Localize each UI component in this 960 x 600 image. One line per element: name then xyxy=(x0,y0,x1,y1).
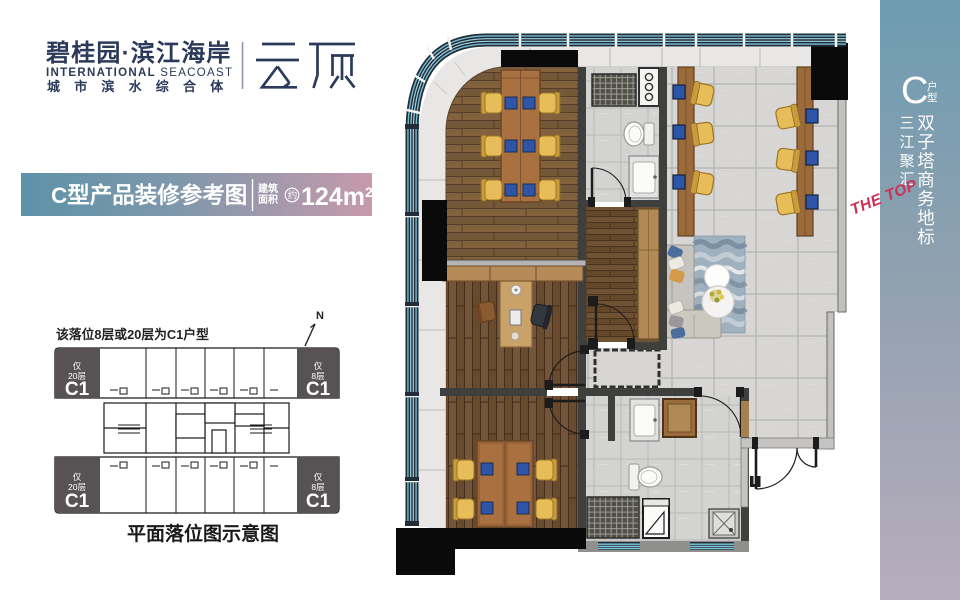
svg-text:标: 标 xyxy=(917,227,935,247)
svg-text:型: 型 xyxy=(927,91,938,104)
svg-text:N: N xyxy=(316,310,324,322)
svg-text:约: 约 xyxy=(288,190,298,202)
svg-text:C1: C1 xyxy=(306,491,331,512)
svg-text:城市滨水综合体: 城市滨水综合体 xyxy=(47,79,237,94)
svg-text:务: 务 xyxy=(917,189,935,209)
svg-text:江: 江 xyxy=(899,134,914,151)
svg-text:地: 地 xyxy=(917,208,935,228)
svg-text:商: 商 xyxy=(917,170,935,190)
svg-text:平面落位图示意图: 平面落位图示意图 xyxy=(127,522,279,545)
svg-text:C1: C1 xyxy=(65,491,90,512)
svg-text:INTERNATIONAL SEACOAST: INTERNATIONAL SEACOAST xyxy=(46,67,233,79)
svg-text:124m2: 124m2 xyxy=(301,183,373,211)
svg-text:塔: 塔 xyxy=(917,151,935,171)
svg-text:仅: 仅 xyxy=(314,361,323,371)
svg-text:面积: 面积 xyxy=(258,193,278,206)
svg-text:仅: 仅 xyxy=(73,361,82,371)
svg-text:聚: 聚 xyxy=(899,153,914,170)
svg-text:仅: 仅 xyxy=(314,472,323,482)
svg-text:双: 双 xyxy=(917,113,935,133)
svg-text:三: 三 xyxy=(899,115,914,132)
svg-text:仅: 仅 xyxy=(73,472,82,482)
svg-text:子: 子 xyxy=(917,132,935,152)
svg-text:C: C xyxy=(901,70,928,112)
svg-text:建筑: 建筑 xyxy=(257,182,278,195)
svg-text:碧桂园·滨江海岸: 碧桂园·滨江海岸 xyxy=(45,39,232,67)
svg-text:该落位8层或20层为C1户型: 该落位8层或20层为C1户型 xyxy=(56,327,209,342)
svg-text:C1: C1 xyxy=(306,379,331,400)
svg-text:C型产品装修参考图: C型产品装修参考图 xyxy=(51,182,247,208)
svg-text:C1: C1 xyxy=(65,379,90,400)
